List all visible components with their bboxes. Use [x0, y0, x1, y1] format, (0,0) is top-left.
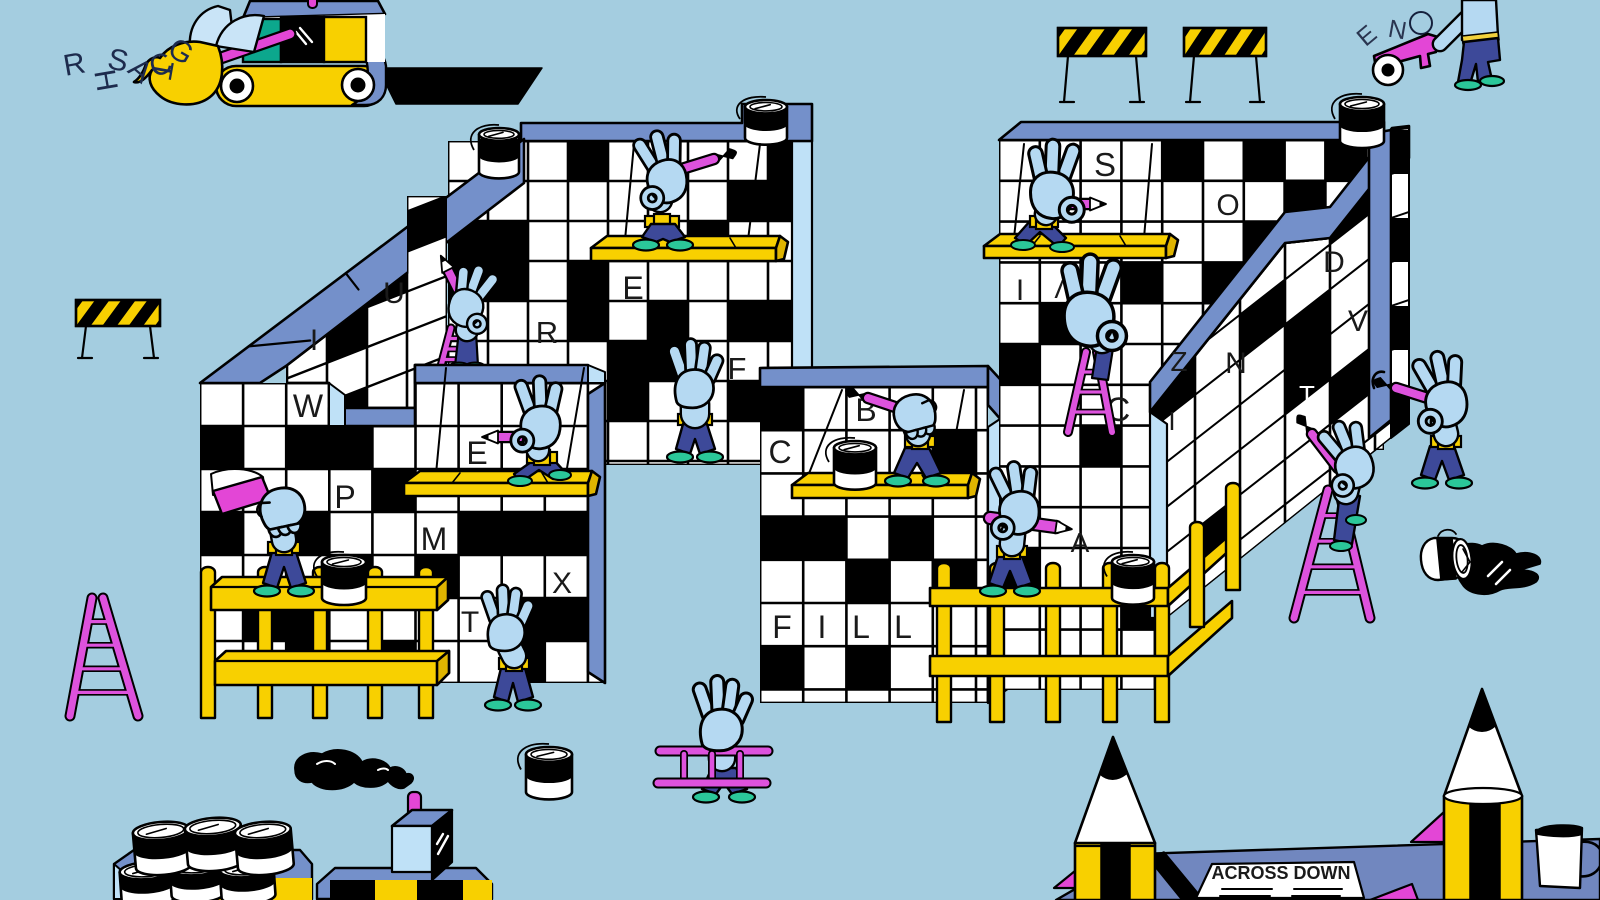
- svg-text:D: D: [1323, 246, 1345, 279]
- svg-text:T: T: [1299, 380, 1315, 410]
- svg-text:I: I: [310, 324, 318, 357]
- svg-text:I: I: [1016, 274, 1024, 307]
- svg-text:O: O: [1216, 189, 1239, 222]
- svg-text:L: L: [852, 609, 870, 645]
- svg-text:ACROSS DOWN: ACROSS DOWN: [1212, 863, 1351, 883]
- svg-text:M: M: [421, 521, 448, 557]
- svg-text:A: A: [1071, 527, 1090, 558]
- svg-text:N: N: [1225, 347, 1247, 380]
- svg-text:F: F: [728, 351, 747, 386]
- svg-text:R: R: [536, 315, 558, 350]
- svg-text:T: T: [461, 606, 479, 639]
- svg-text:F: F: [772, 609, 792, 645]
- svg-text:X: X: [552, 567, 572, 600]
- svg-text:E: E: [622, 270, 643, 306]
- svg-text:U: U: [383, 277, 405, 310]
- svg-text:E: E: [466, 435, 487, 471]
- svg-text:Z: Z: [1170, 346, 1187, 377]
- svg-text:I: I: [1168, 406, 1175, 436]
- svg-text:W: W: [293, 388, 324, 424]
- svg-text:C: C: [768, 434, 791, 470]
- svg-text:P: P: [334, 479, 355, 515]
- svg-text:L: L: [894, 609, 912, 645]
- svg-text:V: V: [1348, 305, 1368, 338]
- svg-text:S: S: [1094, 146, 1116, 183]
- svg-text:I: I: [818, 609, 827, 645]
